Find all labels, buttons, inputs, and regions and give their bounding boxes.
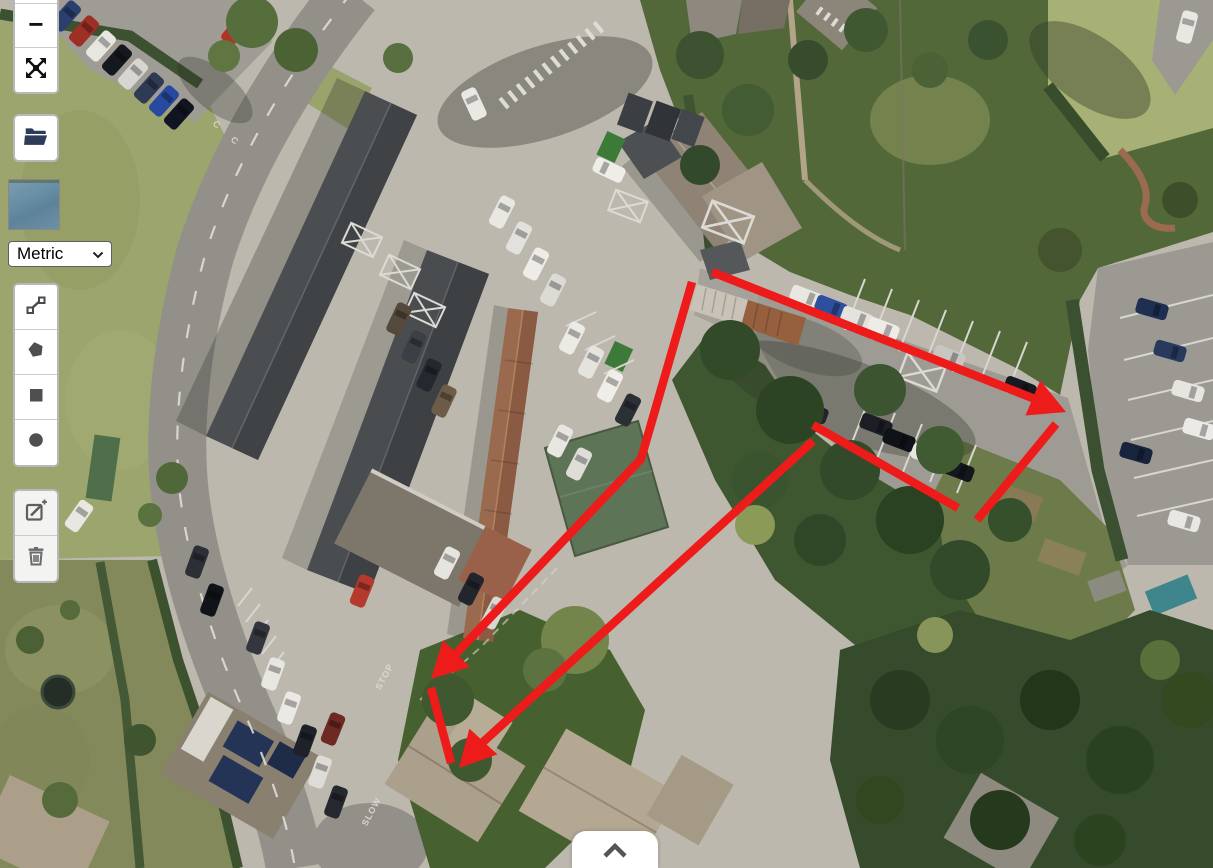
edit-shapes-button[interactable] [15,491,57,536]
expand-panel-button[interactable] [572,831,658,868]
map-viewport[interactable]: STOP SLOW C C [0,0,1213,868]
file-control [13,114,59,162]
minus-icon: − [28,11,43,37]
polyline-icon [24,293,48,322]
aerial-basemap[interactable]: STOP SLOW C C [0,0,1213,868]
chevron-down-icon [92,244,104,264]
pentagon-icon [24,338,48,367]
zoom-out-button[interactable]: − [15,4,57,48]
units-select-value: Metric [17,244,63,264]
draw-polygon-button[interactable] [15,330,57,375]
trash-icon [24,543,48,574]
delete-shapes-button[interactable] [15,536,57,581]
units-select[interactable]: Metric [8,241,112,267]
chevron-up-icon [597,841,633,864]
fullscreen-button[interactable] [15,48,57,92]
square-icon [24,383,48,412]
draw-toolbar [13,283,59,467]
fullscreen-expand-icon [24,56,48,85]
draw-polyline-button[interactable] [15,285,57,330]
zoom-control: − [13,0,59,94]
edit-toolbar [13,489,59,583]
circle-icon [24,428,48,457]
folder-open-icon [23,124,49,153]
draw-rectangle-button[interactable] [15,375,57,420]
draw-circle-button[interactable] [15,420,57,465]
open-file-button[interactable] [15,116,57,160]
edit-pencil-icon [23,498,49,529]
basemap-thumbnail[interactable] [8,179,60,230]
